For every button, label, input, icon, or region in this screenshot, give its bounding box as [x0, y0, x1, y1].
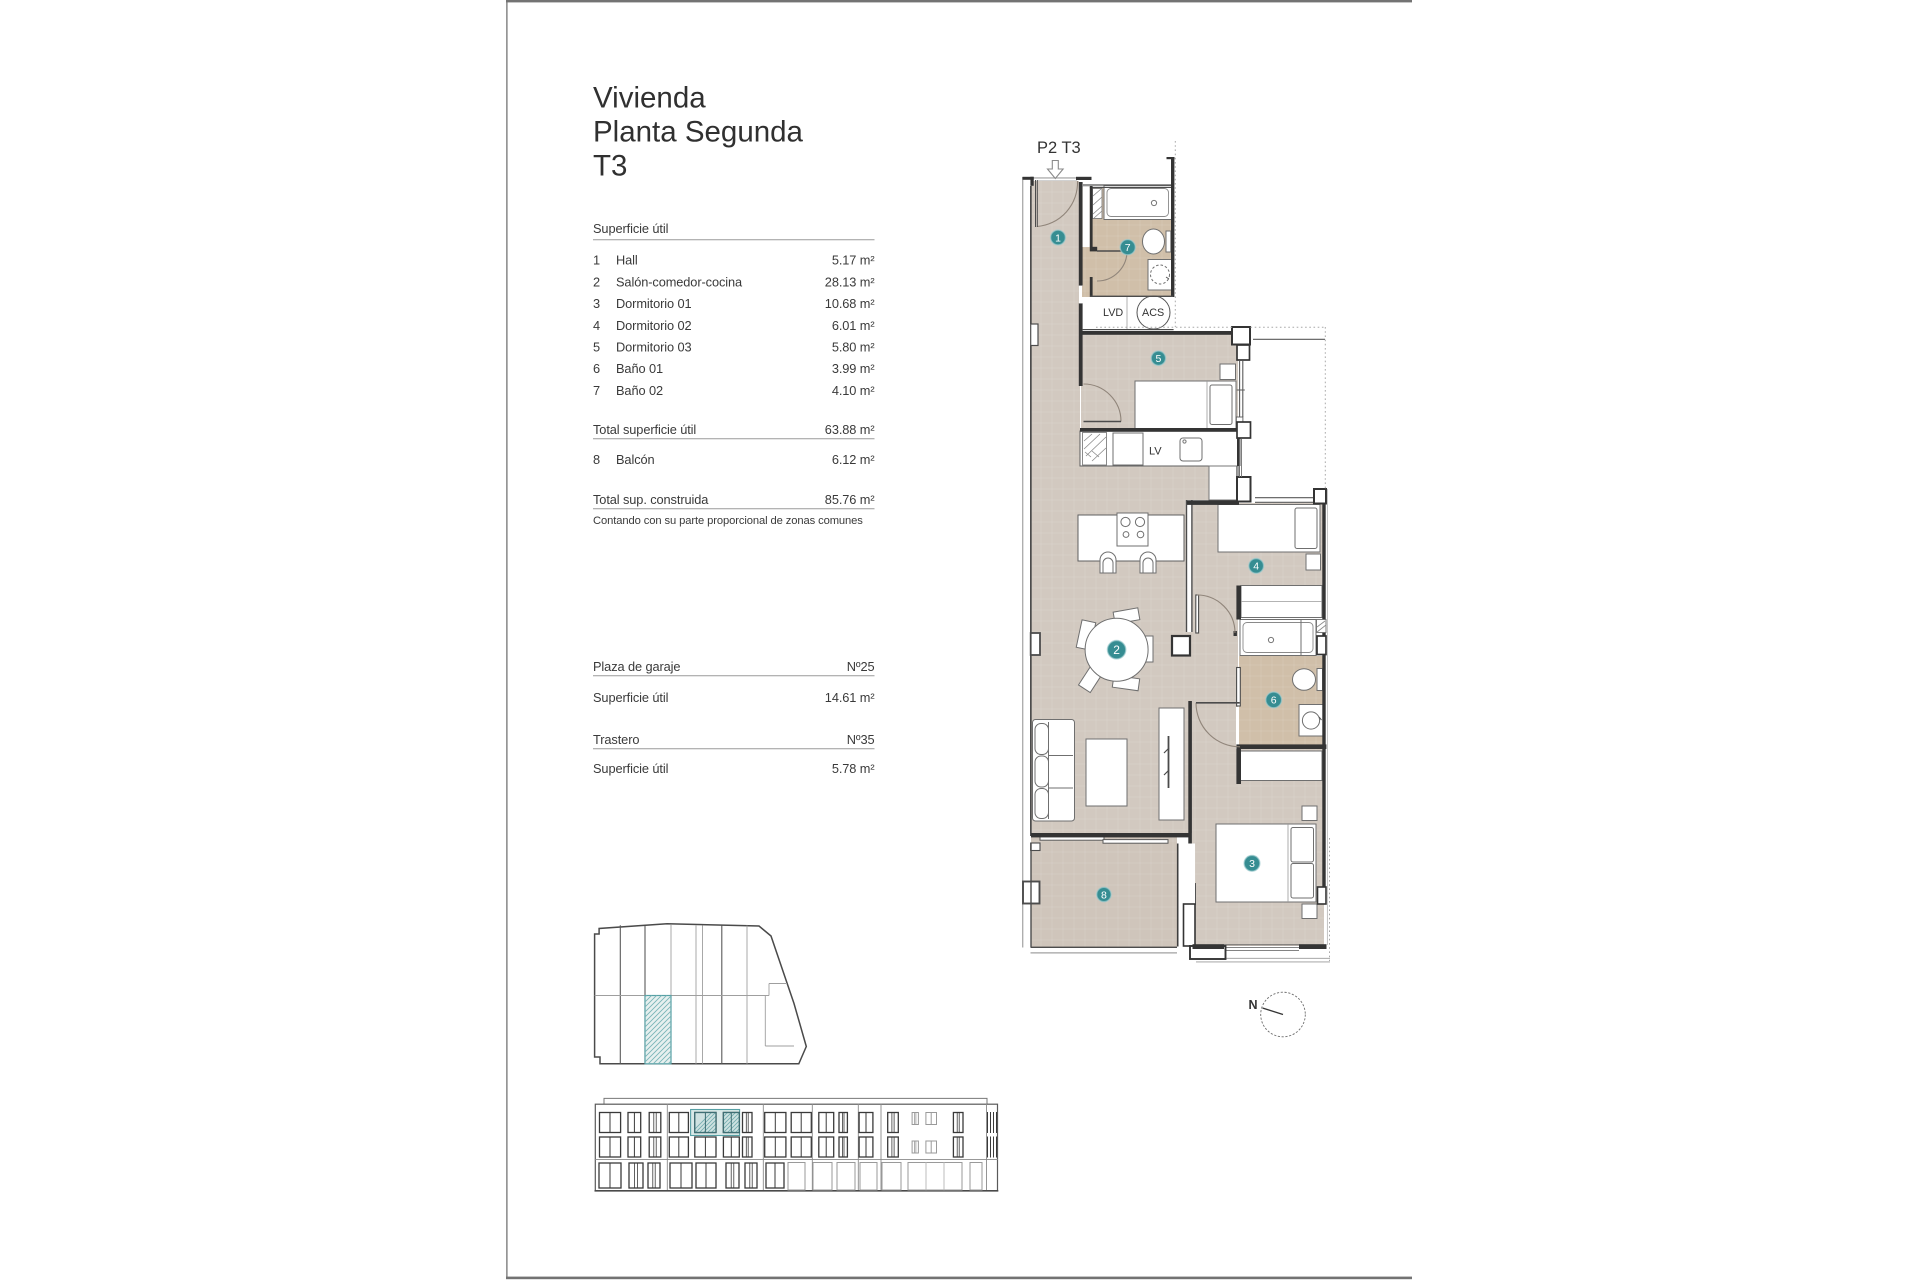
svg-text:Superficie útil: Superficie útil — [593, 221, 668, 236]
svg-text:7: 7 — [1125, 242, 1131, 254]
svg-text:2: 2 — [593, 274, 600, 289]
svg-text:Dormitorio 02: Dormitorio 02 — [616, 318, 692, 333]
svg-text:5: 5 — [1155, 353, 1161, 365]
svg-text:63.88 m²: 63.88 m² — [825, 422, 876, 437]
svg-text:3: 3 — [1249, 858, 1255, 870]
svg-text:Total sup. construida: Total sup. construida — [593, 492, 709, 507]
svg-text:14.61 m²: 14.61 m² — [825, 690, 876, 705]
svg-text:5.17 m²: 5.17 m² — [832, 253, 876, 268]
svg-text:LV: LV — [1149, 446, 1162, 458]
svg-text:3: 3 — [593, 296, 600, 311]
svg-text:ACS: ACS — [1142, 307, 1164, 319]
svg-text:7: 7 — [593, 383, 600, 398]
svg-text:4.10 m²: 4.10 m² — [832, 383, 876, 398]
svg-text:Vivienda: Vivienda — [593, 82, 706, 115]
svg-text:Dormitorio 03: Dormitorio 03 — [616, 340, 692, 355]
svg-text:4: 4 — [1253, 561, 1259, 573]
svg-text:Superficie útil: Superficie útil — [593, 690, 668, 705]
svg-text:Superficie útil: Superficie útil — [593, 761, 668, 776]
svg-text:Total superficie útil: Total superficie útil — [593, 422, 696, 437]
svg-text:4: 4 — [593, 318, 600, 333]
svg-text:Salón-comedor-cocina: Salón-comedor-cocina — [616, 274, 743, 289]
svg-text:28.13 m²: 28.13 m² — [825, 274, 876, 289]
svg-text:6.12 m²: 6.12 m² — [832, 452, 876, 467]
svg-text:Baño 02: Baño 02 — [616, 383, 663, 398]
svg-text:Dormitorio 01: Dormitorio 01 — [616, 296, 692, 311]
svg-text:10.68 m²: 10.68 m² — [825, 296, 876, 311]
svg-text:Planta Segunda: Planta Segunda — [593, 116, 804, 149]
svg-text:Nº25: Nº25 — [847, 659, 875, 674]
svg-text:1: 1 — [1055, 232, 1061, 244]
svg-text:Baño 01: Baño 01 — [616, 361, 663, 376]
svg-text:Nº35: Nº35 — [847, 732, 875, 747]
svg-text:Contando con su parte proporci: Contando con su parte proporcional de zo… — [593, 515, 863, 527]
svg-text:5.78 m²: 5.78 m² — [832, 761, 876, 776]
svg-text:1: 1 — [593, 253, 600, 268]
svg-text:3.99 m²: 3.99 m² — [832, 361, 876, 376]
svg-text:6: 6 — [593, 361, 600, 376]
svg-text:2: 2 — [1113, 643, 1120, 657]
svg-text:8: 8 — [593, 452, 600, 467]
svg-text:6.01 m²: 6.01 m² — [832, 318, 876, 333]
svg-text:6: 6 — [1271, 695, 1277, 707]
svg-text:N: N — [1249, 998, 1258, 1012]
svg-text:P2 T3: P2 T3 — [1037, 139, 1081, 157]
svg-text:5: 5 — [593, 340, 600, 355]
svg-text:Trastero: Trastero — [593, 732, 639, 747]
svg-text:Hall: Hall — [616, 253, 638, 268]
svg-text:5.80 m²: 5.80 m² — [832, 340, 876, 355]
svg-text:8: 8 — [1101, 889, 1107, 901]
svg-text:T3: T3 — [593, 150, 627, 183]
svg-text:LVD: LVD — [1103, 307, 1123, 319]
svg-text:Plaza de garaje: Plaza de garaje — [593, 659, 680, 674]
svg-text:85.76 m²: 85.76 m² — [825, 492, 876, 507]
svg-text:Balcón: Balcón — [616, 452, 655, 467]
